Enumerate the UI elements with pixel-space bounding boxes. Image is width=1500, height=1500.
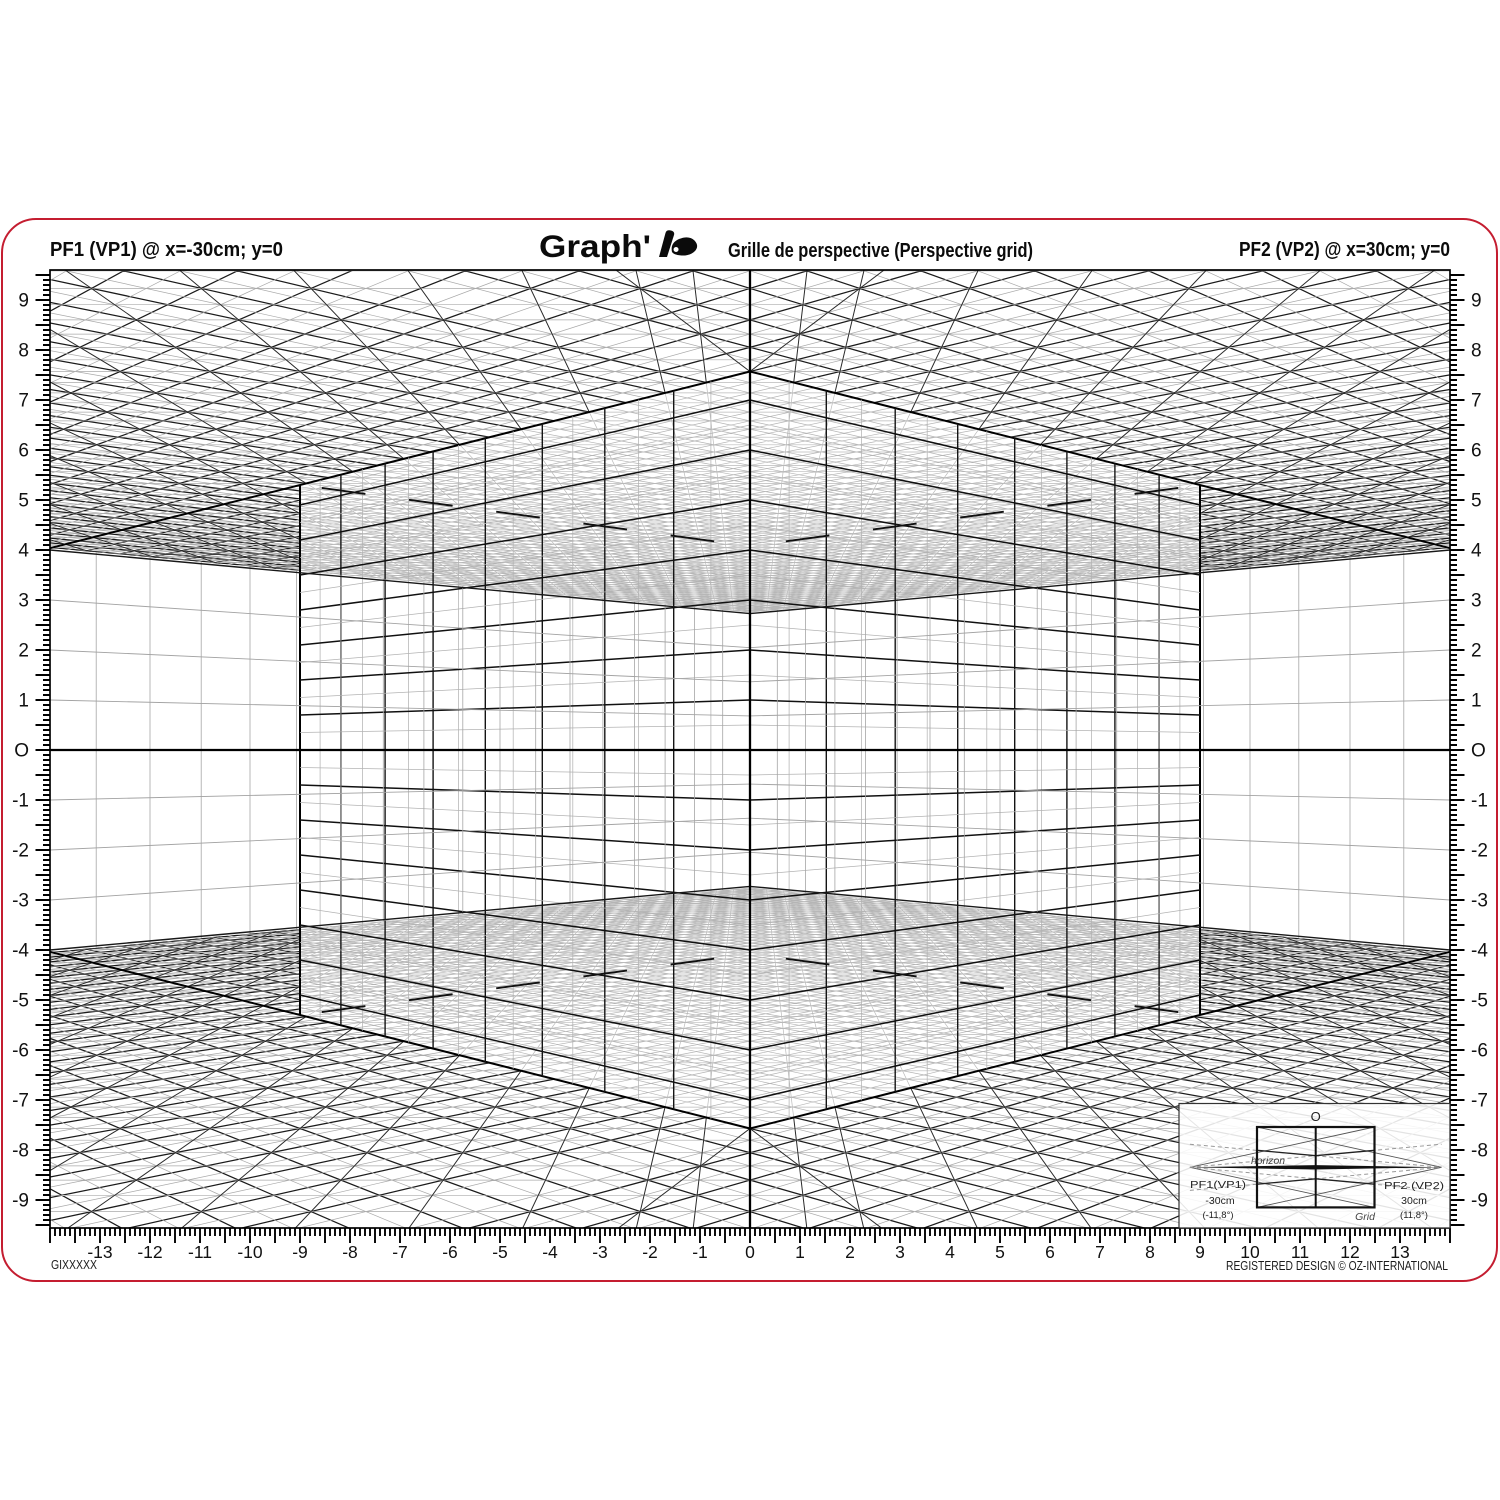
svg-text:2: 2 bbox=[18, 641, 29, 662]
svg-text:-3: -3 bbox=[592, 1242, 608, 1262]
svg-text:O: O bbox=[1311, 1109, 1321, 1124]
svg-text:4: 4 bbox=[945, 1242, 955, 1262]
svg-text:-1: -1 bbox=[692, 1242, 708, 1262]
svg-text:-6: -6 bbox=[442, 1242, 458, 1262]
svg-text:-7: -7 bbox=[12, 1091, 29, 1112]
svg-text:-2: -2 bbox=[12, 841, 29, 862]
svg-text:3: 3 bbox=[1471, 591, 1482, 612]
svg-text:2: 2 bbox=[845, 1242, 855, 1262]
svg-text:8: 8 bbox=[18, 341, 29, 362]
svg-text:6: 6 bbox=[1471, 441, 1482, 462]
svg-text:6: 6 bbox=[18, 441, 29, 462]
svg-text:-11: -11 bbox=[188, 1242, 212, 1262]
svg-text:-8: -8 bbox=[12, 1141, 29, 1162]
svg-text:O: O bbox=[1471, 741, 1486, 762]
svg-text:PF1 (VP1) @ x=-30cm; y=0: PF1 (VP1) @ x=-30cm; y=0 bbox=[50, 239, 283, 261]
svg-text:9: 9 bbox=[1471, 291, 1482, 312]
svg-text:PF2 (VP2): PF2 (VP2) bbox=[1384, 1180, 1444, 1192]
svg-text:1: 1 bbox=[18, 691, 29, 712]
svg-text:(-11,8°): (-11,8°) bbox=[1202, 1210, 1233, 1221]
svg-text:7: 7 bbox=[1095, 1242, 1105, 1262]
svg-text:Grille de perspective (Perspec: Grille de perspective (Perspective grid) bbox=[728, 239, 1033, 262]
svg-text:4: 4 bbox=[18, 541, 29, 562]
svg-text:3: 3 bbox=[18, 591, 29, 612]
svg-text:9: 9 bbox=[1195, 1242, 1205, 1262]
svg-text:7: 7 bbox=[1471, 391, 1482, 412]
svg-text:O: O bbox=[14, 741, 29, 762]
svg-text:(11,8°): (11,8°) bbox=[1400, 1210, 1428, 1221]
svg-text:-12: -12 bbox=[137, 1242, 162, 1262]
svg-text:-9: -9 bbox=[12, 1191, 29, 1212]
svg-text:-9: -9 bbox=[1471, 1191, 1488, 1212]
svg-text:3: 3 bbox=[895, 1242, 905, 1262]
svg-text:5: 5 bbox=[18, 491, 29, 512]
svg-text:PF1(VP1): PF1(VP1) bbox=[1190, 1179, 1246, 1191]
svg-text:-3: -3 bbox=[1471, 891, 1488, 912]
svg-text:-1: -1 bbox=[1471, 791, 1488, 812]
svg-text:-7: -7 bbox=[1471, 1091, 1488, 1112]
svg-text:2: 2 bbox=[1471, 641, 1482, 662]
svg-text:-4: -4 bbox=[1471, 941, 1488, 962]
svg-text:REGISTERED DESIGN © OZ-INTERNA: REGISTERED DESIGN © OZ-INTERNATIONAL bbox=[1226, 1258, 1448, 1273]
svg-text:-10: -10 bbox=[237, 1242, 263, 1262]
svg-text:-30cm: -30cm bbox=[1205, 1195, 1234, 1207]
svg-text:8: 8 bbox=[1471, 341, 1482, 362]
svg-text:-4: -4 bbox=[542, 1242, 558, 1262]
svg-text:4: 4 bbox=[1471, 541, 1482, 562]
svg-text:-5: -5 bbox=[1471, 991, 1488, 1012]
svg-text:6: 6 bbox=[1045, 1242, 1055, 1262]
svg-text:8: 8 bbox=[1145, 1242, 1155, 1262]
svg-text:-7: -7 bbox=[392, 1242, 408, 1262]
svg-text:GIXXXXX: GIXXXXX bbox=[51, 1258, 98, 1272]
svg-text:0: 0 bbox=[745, 1242, 755, 1262]
svg-text:-5: -5 bbox=[492, 1242, 508, 1262]
svg-text:-3: -3 bbox=[12, 891, 29, 912]
svg-text:5: 5 bbox=[1471, 491, 1482, 512]
svg-text:-2: -2 bbox=[642, 1242, 658, 1262]
svg-text:30cm: 30cm bbox=[1401, 1195, 1427, 1207]
svg-text:9: 9 bbox=[18, 291, 29, 312]
svg-text:7: 7 bbox=[18, 391, 29, 412]
svg-text:-8: -8 bbox=[1471, 1141, 1488, 1162]
svg-text:-6: -6 bbox=[1471, 1041, 1488, 1062]
svg-text:-5: -5 bbox=[12, 991, 29, 1012]
svg-text:-2: -2 bbox=[1471, 841, 1488, 862]
svg-text:-1: -1 bbox=[12, 791, 29, 812]
svg-text:-8: -8 bbox=[342, 1242, 358, 1262]
svg-text:PF2 (VP2) @ x=30cm; y=0: PF2 (VP2) @ x=30cm; y=0 bbox=[1239, 239, 1450, 261]
svg-text:1: 1 bbox=[1471, 691, 1482, 712]
svg-text:1: 1 bbox=[795, 1242, 805, 1262]
svg-text:5: 5 bbox=[995, 1242, 1005, 1262]
svg-text:-4: -4 bbox=[12, 941, 29, 962]
svg-text:-6: -6 bbox=[12, 1041, 29, 1062]
svg-text:Grid: Grid bbox=[1355, 1211, 1376, 1223]
svg-text:-9: -9 bbox=[292, 1242, 308, 1262]
svg-text:horizon: horizon bbox=[1251, 1155, 1285, 1167]
svg-text:Graph': Graph' bbox=[539, 228, 651, 264]
